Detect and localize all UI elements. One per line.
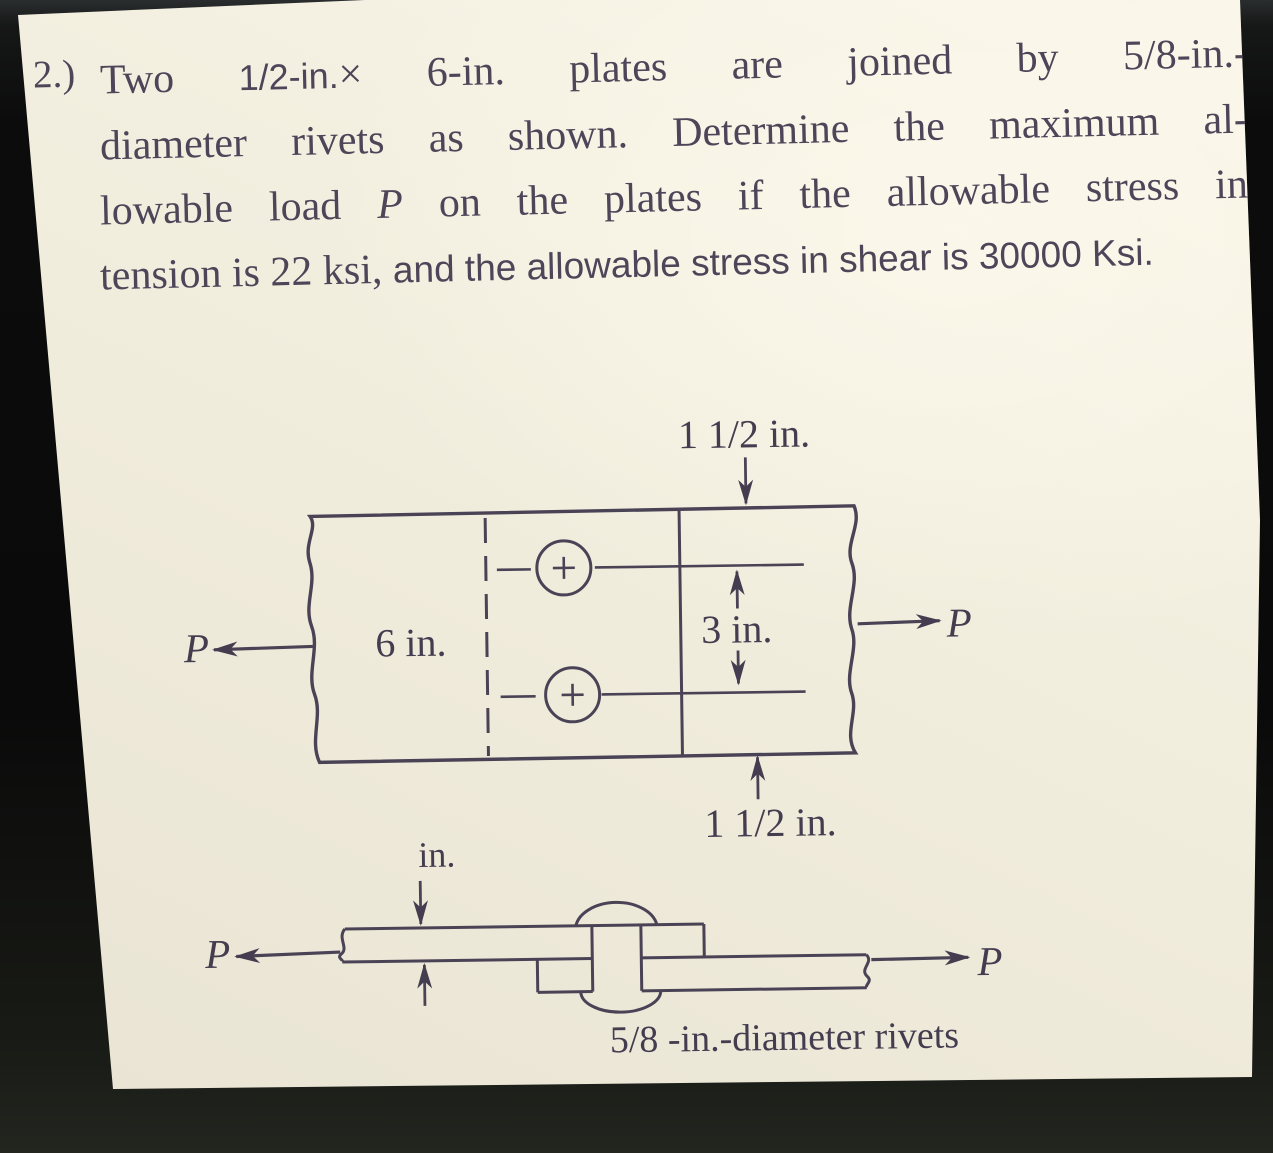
load-label-right-top: P: [945, 599, 972, 645]
side-view-lap-joint: [235, 873, 969, 1017]
thickness-arrow-down: [420, 881, 421, 924]
plate-width-label: 6 in.: [375, 620, 447, 666]
dim-top-label: 1 1/2 in.: [678, 410, 811, 457]
rivet-shank: [592, 925, 642, 992]
thickness-unit-label: in.: [418, 834, 456, 875]
load-label-left-side: P: [204, 931, 231, 977]
top-view-plates: [211, 455, 942, 807]
load-arrow-left-side-view: [236, 952, 340, 956]
top-plate-top-edge: [345, 924, 704, 929]
top-plate-end-edge: [679, 509, 682, 756]
load-arrow-right-top-view: [858, 621, 940, 624]
rivet-caption: 5/8 -in.-diameter rivets: [610, 1014, 960, 1061]
rivet-joint-figure: 1 1/2 in. 6 in. 3 in. 1 1/2 in. P P in. …: [0, 0, 1273, 1153]
top-plate-left-break: [339, 929, 345, 962]
load-label-right-side: P: [976, 938, 1003, 984]
rivet-1-centerline-right: [595, 565, 804, 568]
load-arrow-right-side-view: [871, 957, 968, 959]
dim-bottom-label: 1 1/2 in.: [704, 799, 837, 846]
bottom-plate-right-break: [864, 955, 869, 988]
rivet-2-centerline-right: [602, 692, 806, 695]
rivet-head-top: [576, 902, 657, 926]
plate-interface-line: [342, 955, 866, 962]
bottom-plate-bottom-edge: [538, 988, 867, 993]
thickness-arrow-up: [424, 965, 425, 1006]
photo-of-textbook-problem: { "problem": { "number": "2.)", "line1_s…: [0, 0, 1273, 1153]
dim-bottom-arrow: [758, 757, 759, 799]
load-arrow-left-top-view: [214, 646, 313, 649]
hidden-plate-edge-dashed: [485, 518, 488, 756]
rivet-spacing-label: 3 in.: [701, 606, 773, 652]
load-label-left-top: P: [183, 625, 210, 671]
paper-sheet: 2.) Two 1/2-in.× 6-in. plates are joined…: [0, 0, 1273, 1153]
rivet-head-bottom: [581, 991, 661, 1013]
dim-spacing-arrow-up: [737, 571, 738, 608]
dim-top-arrow: [745, 457, 746, 503]
